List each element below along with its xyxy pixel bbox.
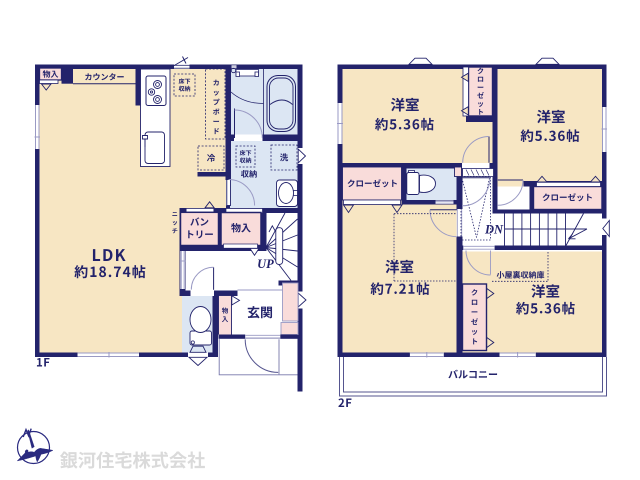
svg-text:UP: UP xyxy=(257,257,274,271)
svg-text:DN: DN xyxy=(484,223,504,237)
